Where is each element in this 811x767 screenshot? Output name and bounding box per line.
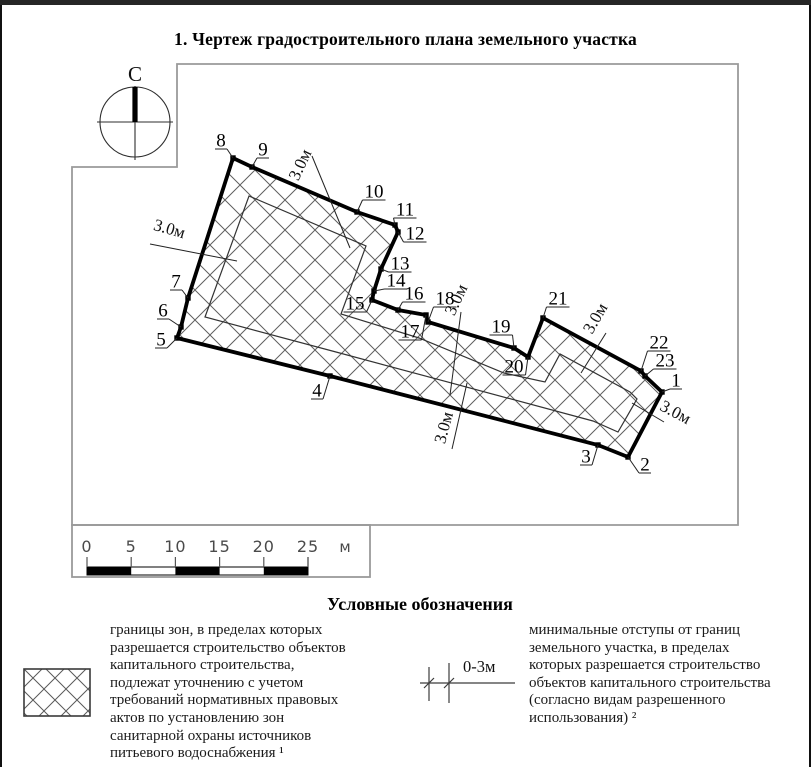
vertex-label-1: 1 bbox=[671, 371, 681, 392]
scale-tick-label: 0 bbox=[81, 537, 92, 556]
swatch-rect bbox=[24, 669, 90, 716]
scale-tick-label: 15 bbox=[208, 537, 230, 556]
scale-tick-label: 10 bbox=[164, 537, 186, 556]
vertex-label-20: 20 bbox=[505, 357, 524, 378]
vertex-label-2: 2 bbox=[640, 455, 650, 476]
legend-item-setbacks-text: минимальные отступы от границ земельного… bbox=[529, 622, 804, 728]
vertex-label-10: 10 bbox=[365, 182, 384, 203]
vertex-label-11: 11 bbox=[396, 200, 414, 221]
site-plan-figure: С3.0м3.0м3.0м3.0м3.0м3.0м123456789101112… bbox=[0, 5, 811, 597]
vertex-label-17: 17 bbox=[401, 322, 420, 343]
vertex-label-14: 14 bbox=[387, 271, 407, 292]
vertex-label-9: 9 bbox=[258, 140, 268, 161]
vertex-label-21: 21 bbox=[549, 289, 568, 310]
vertex-label-23: 23 bbox=[656, 351, 675, 372]
vertex-label-5: 5 bbox=[156, 330, 166, 351]
scale-tick-label: 5 bbox=[126, 537, 137, 556]
scale-unit-label: м bbox=[339, 538, 350, 556]
north-compass: С bbox=[97, 62, 173, 160]
vertex-label-4: 4 bbox=[312, 381, 322, 402]
scale-tick-label: 25 bbox=[297, 537, 319, 556]
vertex-label-8: 8 bbox=[216, 131, 226, 152]
vertex-label-3: 3 bbox=[581, 447, 591, 468]
setback-dimension-label: 0-3м bbox=[463, 657, 495, 677]
page: 1. Чертеж градостроительного плана земел… bbox=[0, 0, 811, 767]
legend-item-zone-boundaries-text: границы зон, в пределах которых разрешае… bbox=[110, 622, 395, 763]
legend-heading: Условные обозначения bbox=[327, 594, 513, 615]
parcel-boundary bbox=[177, 158, 662, 457]
north-label: С bbox=[128, 62, 142, 86]
vertex-label-6: 6 bbox=[158, 301, 168, 322]
setback-distance-label: 3.0м bbox=[579, 299, 612, 336]
vertex-label-15: 15 bbox=[346, 294, 365, 315]
vertex-label-16: 16 bbox=[405, 284, 424, 305]
crosshatch-swatch bbox=[22, 667, 94, 720]
setback-distance-label: 3.0м bbox=[657, 396, 694, 428]
scale-bar: 0510152025м bbox=[81, 537, 350, 575]
vertex-label-18: 18 bbox=[436, 289, 455, 310]
setback-distance-label: 3.0м bbox=[430, 409, 457, 445]
setback-distance-label: 3.0м bbox=[152, 215, 188, 242]
vertex-label-7: 7 bbox=[171, 272, 181, 293]
vertex-label-12: 12 bbox=[406, 224, 425, 245]
setback-distance-label: 3.0м bbox=[285, 146, 316, 183]
scale-tick-label: 20 bbox=[253, 537, 275, 556]
vertex-label-19: 19 bbox=[492, 317, 511, 338]
